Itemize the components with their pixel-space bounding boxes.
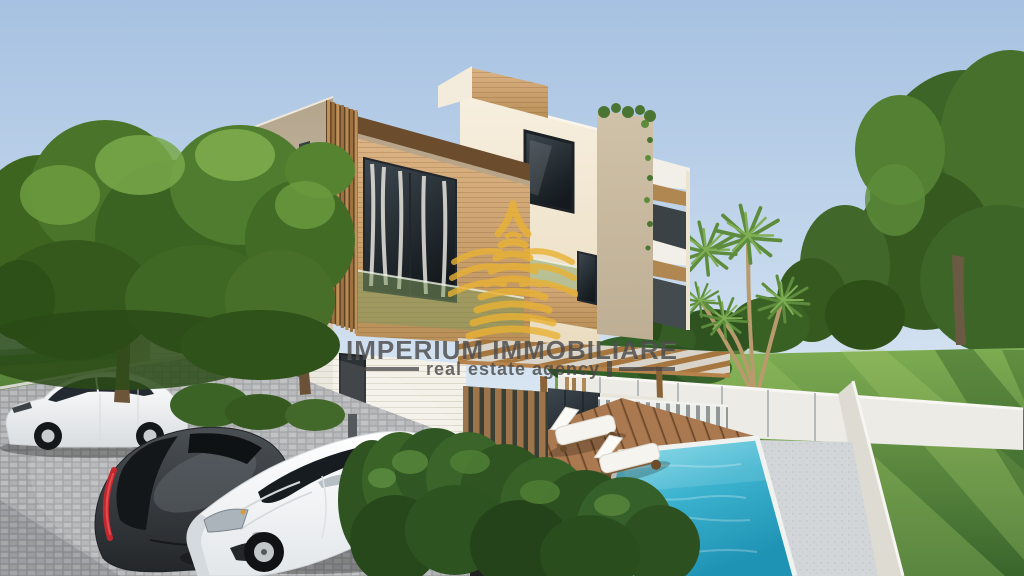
watermark-subtitle: real estate agency <box>426 360 600 378</box>
watermark-subtitle-row: real estate agency <box>342 360 682 378</box>
subtitle-left-rule <box>349 367 419 371</box>
window <box>578 252 596 304</box>
building-logo-icon <box>448 196 578 342</box>
right-wing <box>653 158 690 330</box>
real-estate-render: IMPERIUM IMMOBILIARE real estate agency <box>0 0 1024 576</box>
column <box>597 110 653 340</box>
subtitle-divider <box>607 361 612 377</box>
subtitle-right-rule <box>619 367 675 371</box>
trees-left <box>0 120 355 431</box>
